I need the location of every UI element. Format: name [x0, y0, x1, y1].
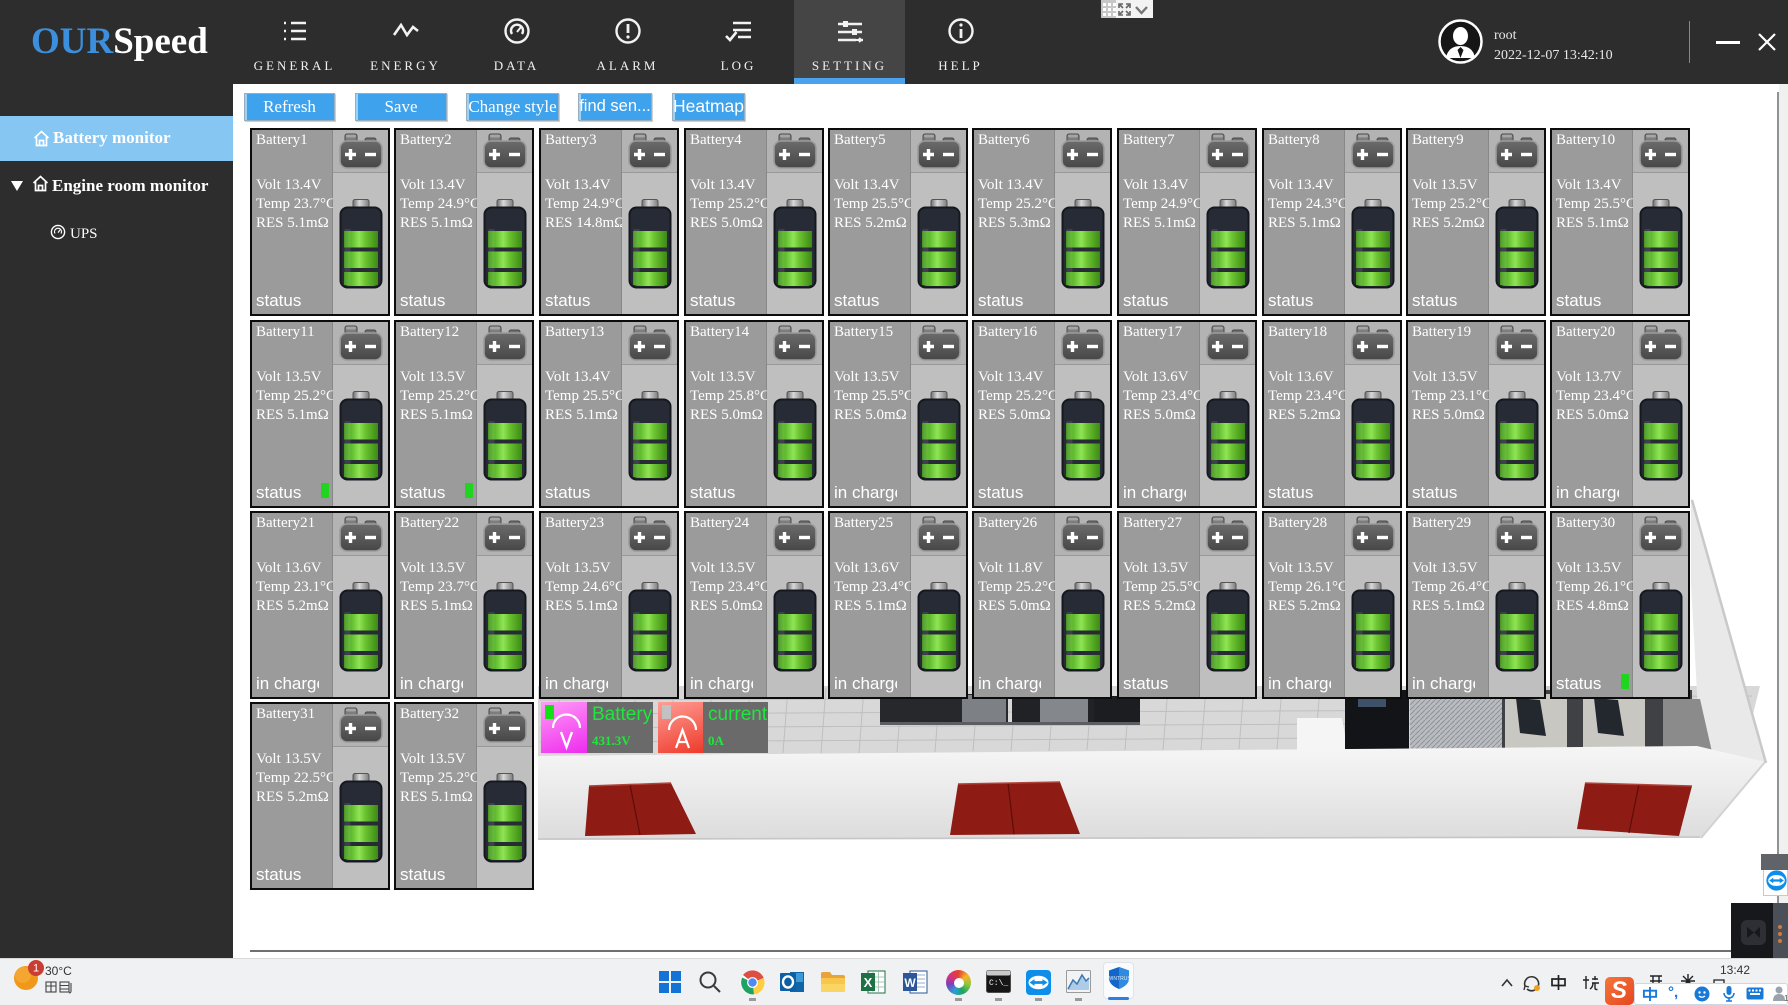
svg-text:W: W: [904, 976, 916, 990]
svg-text:C:\_: C:\_: [989, 979, 1008, 988]
svg-text:10: 10: [1784, 994, 1788, 1002]
svg-text:WINTRUS: WINTRUS: [1108, 976, 1130, 982]
svg-text:X: X: [864, 975, 873, 990]
svg-text:1: 1: [33, 963, 39, 975]
